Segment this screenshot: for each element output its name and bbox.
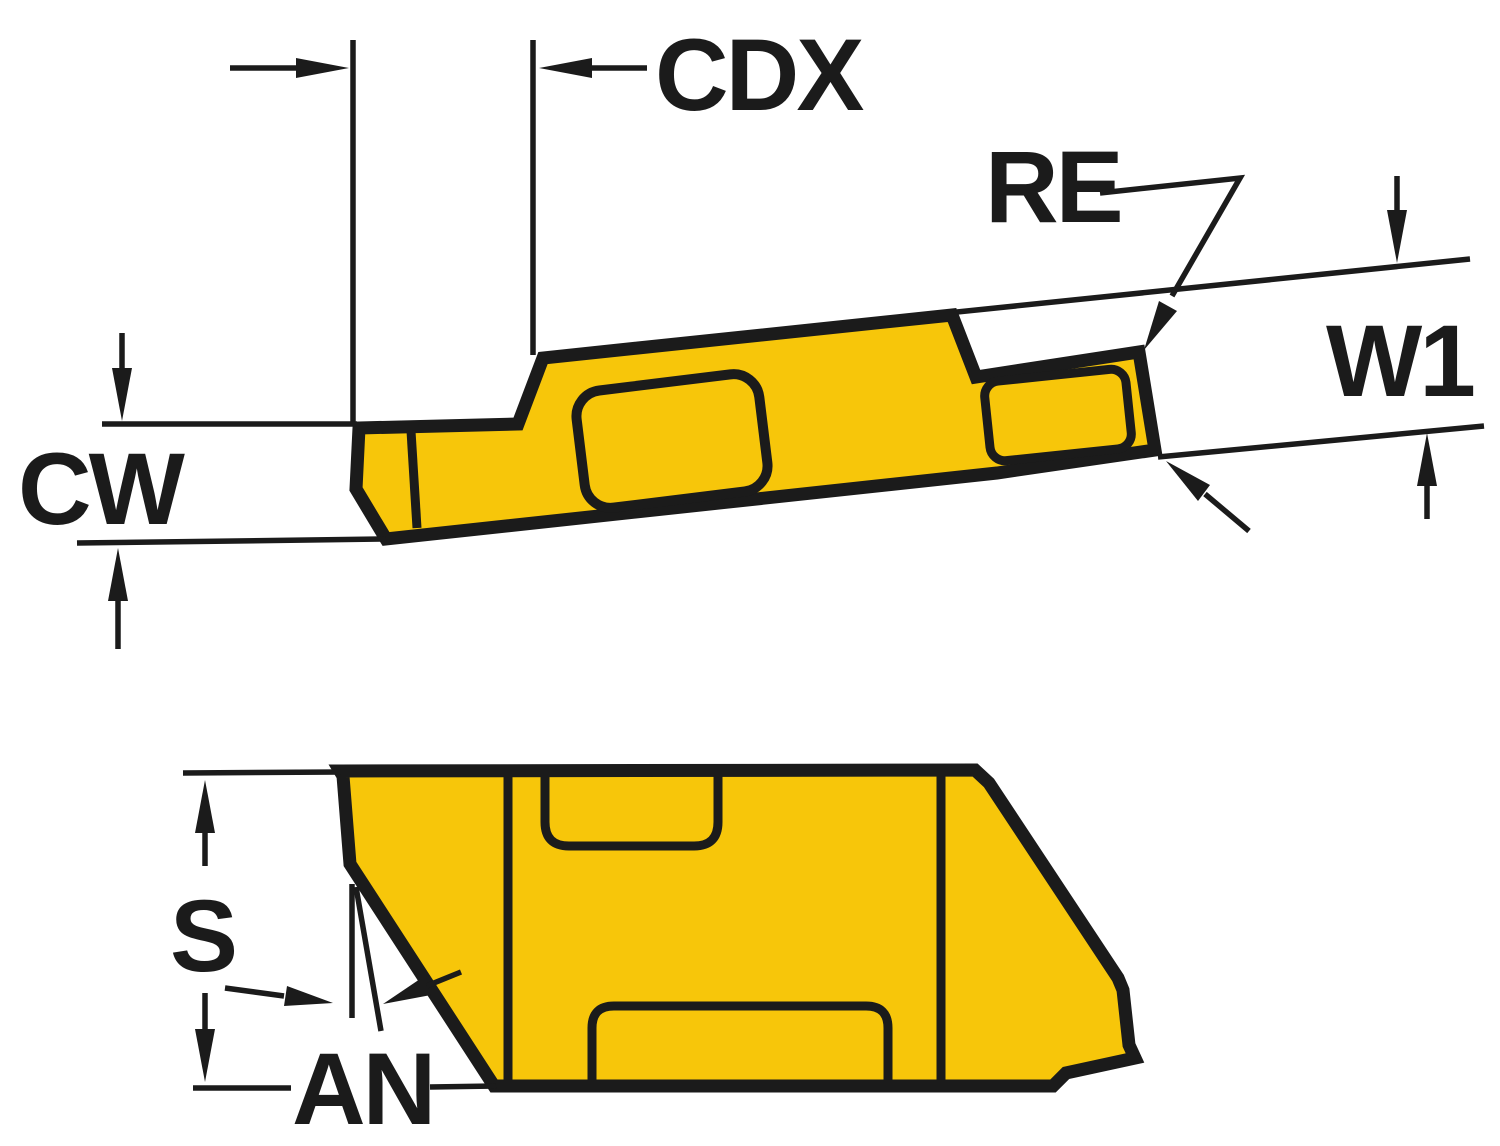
w1-extension-line-bottom [1158,426,1484,457]
w1-arrow-top-head [1387,210,1407,263]
w1-arrow-bottom-head [1417,433,1437,486]
cw-arrow-bottom-head [108,548,128,601]
s-extension-line-top [183,772,341,773]
label-s: S [170,879,235,993]
re-leader-line [1100,178,1240,296]
an-arrow-left-head [284,986,333,1006]
cw-arrow-top-head [112,368,132,421]
label-re: RE [985,130,1121,244]
label-cdx: CDX [655,18,864,132]
re-arrow-top-head [1144,301,1177,350]
side-clamp-step-line [411,431,417,528]
cdx-arrow-right-head [539,58,592,78]
side-profile-view: CDX CW W1 RE [18,18,1484,649]
front-profile-view: S AN [170,770,1135,1146]
s-arrow-top-head [195,780,215,833]
s-extension-line-bottom-right [430,1086,496,1087]
insert-dimension-drawing: CDX CW W1 RE [0,0,1500,1146]
re-arrow-bottom-head [1166,461,1210,501]
re-arrow-bottom-line [1205,494,1249,531]
label-an: AN [292,1032,433,1146]
label-cw: CW [18,432,186,546]
label-w1: W1 [1326,304,1473,418]
an-arrow-right-head [383,977,431,1004]
front-insert-outline [340,770,1135,1086]
s-arrow-bottom-head [195,1029,215,1082]
side-insert-outline [356,315,1155,539]
cdx-arrow-left-head [296,58,349,78]
